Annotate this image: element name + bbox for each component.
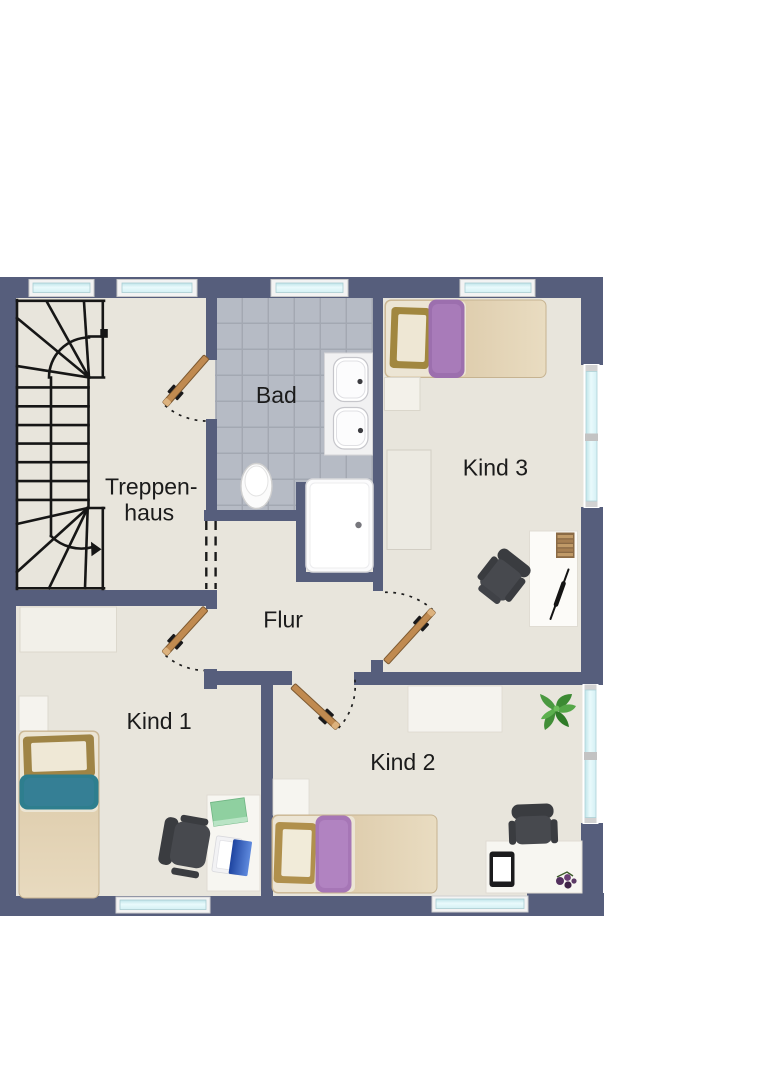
svg-text:Treppen-: Treppen- [105, 474, 197, 500]
svg-text:Flur: Flur [263, 607, 303, 633]
svg-text:Bad: Bad [256, 382, 297, 408]
svg-text:Kind 1: Kind 1 [127, 708, 192, 734]
svg-text:Kind 2: Kind 2 [370, 749, 435, 775]
svg-text:Kind 3: Kind 3 [463, 455, 528, 481]
svg-text:haus: haus [124, 500, 174, 526]
